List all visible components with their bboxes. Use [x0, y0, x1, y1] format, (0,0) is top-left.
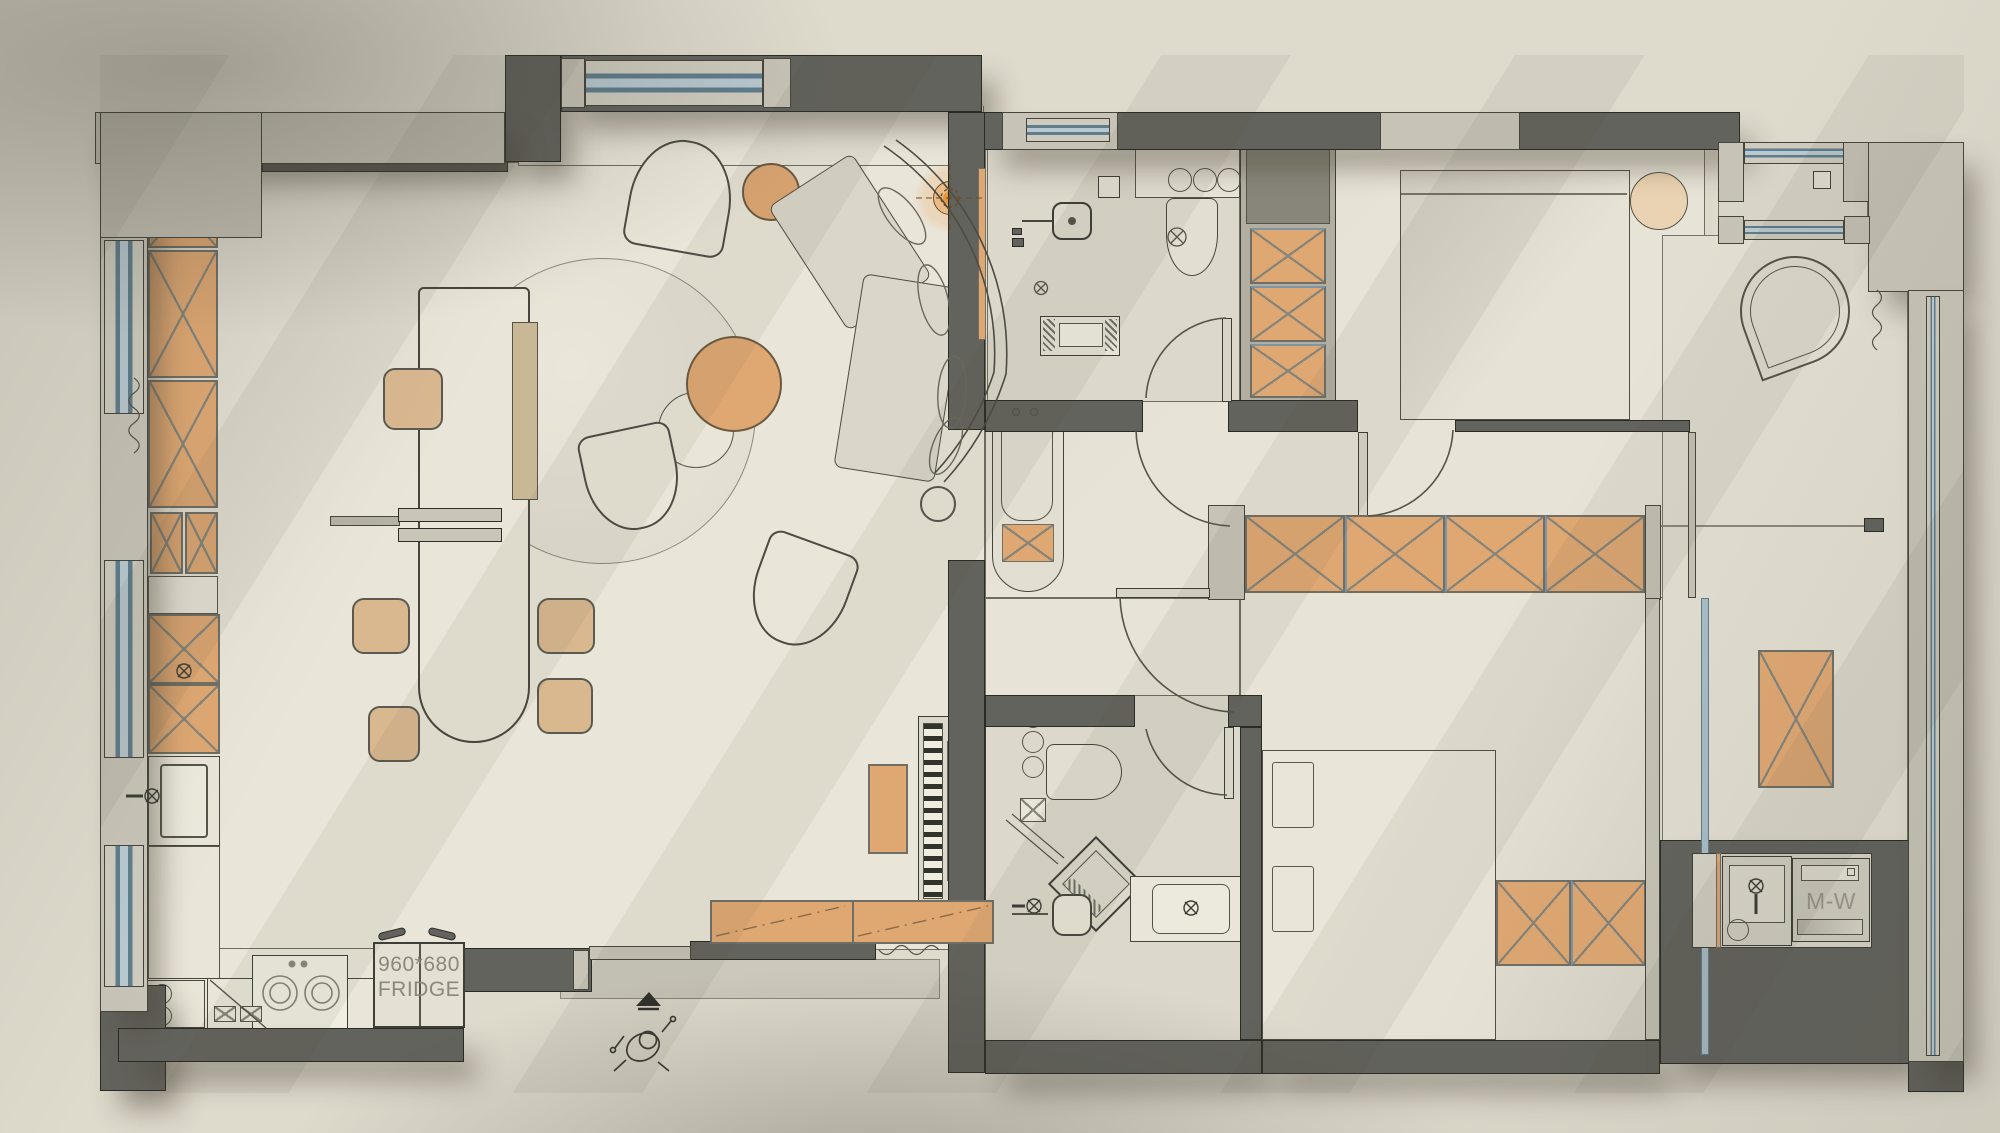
wall-console — [398, 508, 502, 522]
entry-step-pier — [573, 950, 589, 990]
bed-double — [1400, 170, 1630, 420]
right-glass-wall — [1926, 296, 1940, 1056]
window-pier — [561, 58, 585, 108]
wardrobe-x-panel — [1445, 515, 1545, 593]
vanity-bowl-icon — [1193, 168, 1217, 192]
entry-threshold — [589, 946, 691, 960]
valve-lever — [1012, 238, 1024, 247]
left-window-2 — [104, 560, 144, 758]
towel-radiator — [1040, 316, 1120, 356]
person-figure-icon — [611, 1017, 676, 1072]
shelf-bowl-icon — [1022, 731, 1044, 753]
window-pier — [1843, 142, 1869, 202]
washer-base-band — [1797, 919, 1863, 935]
bath1-window — [1026, 118, 1110, 142]
hall-floor — [985, 598, 1240, 698]
kitchen-base-cabinet — [150, 512, 183, 574]
window-pier — [1718, 142, 1744, 202]
shower-handle — [1052, 202, 1092, 240]
bathroom2-bottom-wall — [985, 1040, 1262, 1074]
entry-west-wall — [948, 560, 985, 1073]
floor-drain-icon — [1020, 798, 1046, 822]
corner-cabinet-basket — [240, 1006, 262, 1022]
corridor-wall-thin — [1455, 420, 1690, 432]
bedroom1-door-leaf — [1358, 432, 1368, 518]
fridge-name-text: FRIDGE — [375, 977, 463, 1002]
kitchen-prep-counter — [148, 684, 220, 754]
wardrobe-top-section — [1246, 146, 1330, 224]
cabinet-divider — [852, 902, 854, 942]
wardrobe-x-panel — [1496, 880, 1571, 966]
bed-pillow — [1272, 866, 1314, 932]
bathtub-deck-panel — [1002, 524, 1054, 562]
fridge: 960*680 FRIDGE — [373, 942, 465, 1028]
balcony-inner-window — [1744, 220, 1844, 240]
kitchen-bottom-wall — [118, 1028, 464, 1062]
coffee-table — [686, 336, 782, 432]
bedroom2-bottom-wall — [1262, 1040, 1660, 1074]
floor-plan-canvas: 960*680 FRIDGE — [0, 0, 2000, 1133]
bathtub — [992, 406, 1064, 592]
fridge-dimensions-text: 960*680 — [375, 952, 463, 977]
bath2-top-wall-a — [985, 695, 1135, 727]
kitchen-tall-cabinet — [148, 380, 218, 508]
entry-shoe-cabinet — [710, 900, 994, 944]
top-wall-step — [505, 55, 561, 162]
left-window-1 — [104, 240, 144, 414]
living-top-floor — [518, 106, 984, 166]
entry-porch — [560, 959, 940, 999]
wardrobe-cap-left — [1208, 505, 1245, 600]
top-right-corner-block — [1868, 142, 1964, 292]
bathtub-basin — [1001, 417, 1053, 521]
balcony-rail-tick — [1864, 518, 1884, 532]
kitchen-base-cabinet — [185, 512, 218, 574]
laundry-bucket-icon — [1727, 919, 1749, 941]
bedroom2-west-wall — [1240, 727, 1262, 1040]
washer-button-icon — [1847, 868, 1855, 876]
bath2-sink — [1152, 884, 1230, 934]
balcony-outer-window — [1744, 142, 1844, 164]
kitchen-counter — [148, 576, 218, 614]
wardrobe-cap-right — [1645, 505, 1661, 600]
toilet — [1046, 744, 1122, 800]
wardrobe-x-panel — [1250, 344, 1326, 398]
dining-chair — [352, 598, 410, 654]
bathroom1-door-leaf — [1222, 318, 1232, 402]
washer-dryer: M-W — [1792, 858, 1870, 942]
laundry-trim-strip — [1716, 853, 1721, 948]
wardrobe-x-panel — [1250, 228, 1326, 284]
radiator-end — [1043, 319, 1055, 351]
window-pier — [763, 58, 791, 108]
laundry-sink-basin — [1729, 865, 1785, 923]
corridor-wall-a — [985, 400, 1143, 432]
living-top-window — [585, 60, 763, 106]
wardrobe-x-panel — [1250, 286, 1326, 342]
vanity-bowl-icon — [1168, 168, 1192, 192]
window-pier — [1844, 216, 1870, 244]
balcony-table — [1758, 650, 1834, 788]
wall-console-rail — [330, 516, 400, 526]
kitchen-prep-counter — [148, 614, 220, 684]
bed1-top-wall-light — [1380, 112, 1520, 150]
radiator-end — [1105, 319, 1117, 351]
bathroom2-door-leaf — [1224, 727, 1234, 799]
shelf-bowl-icon — [1022, 756, 1044, 778]
wall-console — [398, 528, 502, 542]
fridge-label: 960*680 FRIDGE — [375, 952, 463, 1002]
wall-shelf-strip — [978, 168, 986, 340]
left-window-3 — [104, 845, 144, 987]
dining-chair — [368, 706, 420, 762]
floor-drain-icon — [1813, 171, 1831, 189]
wardrobe-x-panel — [1345, 515, 1445, 593]
bed-pillow — [1272, 762, 1314, 828]
kitchen-counter — [148, 846, 220, 980]
wardrobe-x-panel — [1245, 515, 1345, 593]
bedroom2-east-wall — [1645, 598, 1660, 1040]
balcony-glass-partition — [1701, 598, 1709, 1055]
kitchen-tall-cabinet — [148, 250, 218, 378]
laundry-sink-cabinet — [1722, 856, 1792, 946]
bath2-top-wall-b — [1228, 695, 1262, 727]
kitchen-sink-basin — [160, 764, 208, 838]
piano-keys — [923, 723, 943, 899]
dining-chair — [383, 368, 443, 430]
valve-lever — [1012, 228, 1022, 235]
dining-chair — [537, 598, 595, 654]
ottoman — [920, 486, 956, 522]
piano-bench — [868, 764, 908, 854]
bedroom2-door-leaf — [1116, 588, 1210, 598]
bedroom1-balcony-pier — [1688, 432, 1696, 598]
radiator-core — [1059, 323, 1103, 347]
wardrobe-x-panel — [1545, 515, 1645, 593]
washer-label: M-W — [1793, 889, 1869, 914]
wardrobe-x-panel — [1571, 880, 1646, 966]
bidet-basin — [1052, 894, 1092, 936]
table-side-bench — [512, 322, 538, 500]
dining-chair — [537, 678, 593, 734]
left-corner-block — [100, 112, 262, 238]
floor-drain-icon — [1098, 176, 1120, 198]
bed-headboard-line — [1401, 193, 1627, 195]
corridor-wall-b — [1228, 400, 1358, 432]
corner-cabinet-basket — [214, 1006, 236, 1022]
vanity-bowl-icon — [1217, 168, 1241, 192]
bedside-round-table — [1630, 172, 1688, 230]
gas-stove — [252, 955, 348, 1029]
balcony-rail-line — [1650, 525, 1868, 527]
window-pier — [1718, 216, 1744, 244]
